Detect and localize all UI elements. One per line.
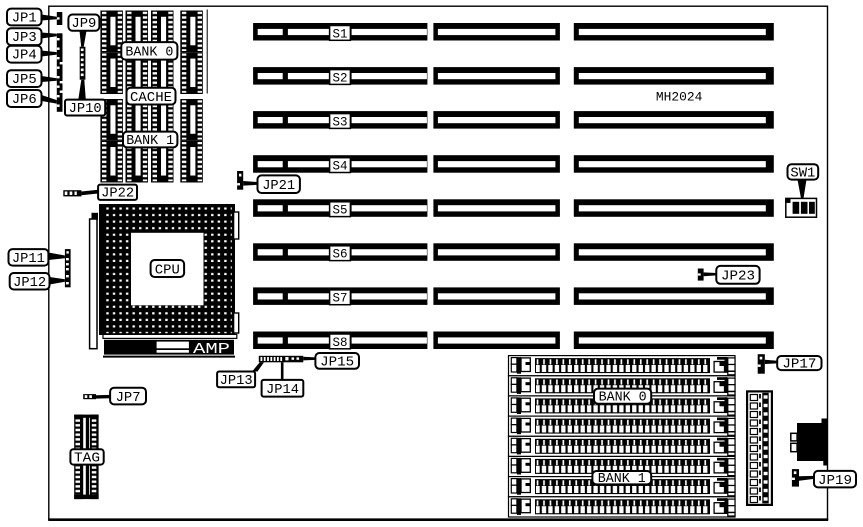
svg-text:S8: S8 xyxy=(333,335,348,350)
svg-text:JP9: JP9 xyxy=(71,16,96,32)
svg-text:JP19: JP19 xyxy=(818,473,852,489)
svg-text:JP5: JP5 xyxy=(12,72,37,88)
svg-text:BANK 1: BANK 1 xyxy=(598,471,646,487)
svg-text:JP11: JP11 xyxy=(12,251,45,267)
svg-text:JP17: JP17 xyxy=(782,356,816,372)
svg-text:TAG: TAG xyxy=(74,450,100,466)
svg-text:CPU: CPU xyxy=(155,262,180,278)
svg-text:S5: S5 xyxy=(333,203,348,218)
svg-text:JP10: JP10 xyxy=(69,101,102,117)
svg-text:S3: S3 xyxy=(333,114,348,129)
svg-text:JP14: JP14 xyxy=(266,382,299,398)
svg-text:CACHE: CACHE xyxy=(130,90,172,106)
svg-text:JP12: JP12 xyxy=(13,275,46,291)
svg-text:JP6: JP6 xyxy=(12,92,37,108)
svg-text:JP22: JP22 xyxy=(101,186,134,202)
svg-text:JP15: JP15 xyxy=(320,355,354,371)
svg-text:BANK 0: BANK 0 xyxy=(125,45,173,61)
svg-text:AMP: AMP xyxy=(193,341,230,358)
svg-text:S1: S1 xyxy=(333,26,348,41)
svg-text:JP1: JP1 xyxy=(12,11,37,27)
svg-text:S6: S6 xyxy=(333,247,348,262)
svg-text:JP7: JP7 xyxy=(116,390,141,406)
svg-text:S4: S4 xyxy=(333,159,348,174)
svg-text:JP23: JP23 xyxy=(721,269,755,285)
svg-text:JP13: JP13 xyxy=(220,373,253,389)
svg-text:SW1: SW1 xyxy=(790,165,815,181)
svg-text:JP3: JP3 xyxy=(12,30,37,46)
svg-text:BANK 1: BANK 1 xyxy=(126,133,174,149)
svg-text:BANK 0: BANK 0 xyxy=(599,390,647,406)
svg-text:JP21: JP21 xyxy=(262,178,295,194)
svg-text:S2: S2 xyxy=(333,70,348,85)
svg-text:MH2024: MH2024 xyxy=(656,91,703,105)
svg-text:S7: S7 xyxy=(333,291,348,306)
svg-text:JP4: JP4 xyxy=(12,48,37,64)
